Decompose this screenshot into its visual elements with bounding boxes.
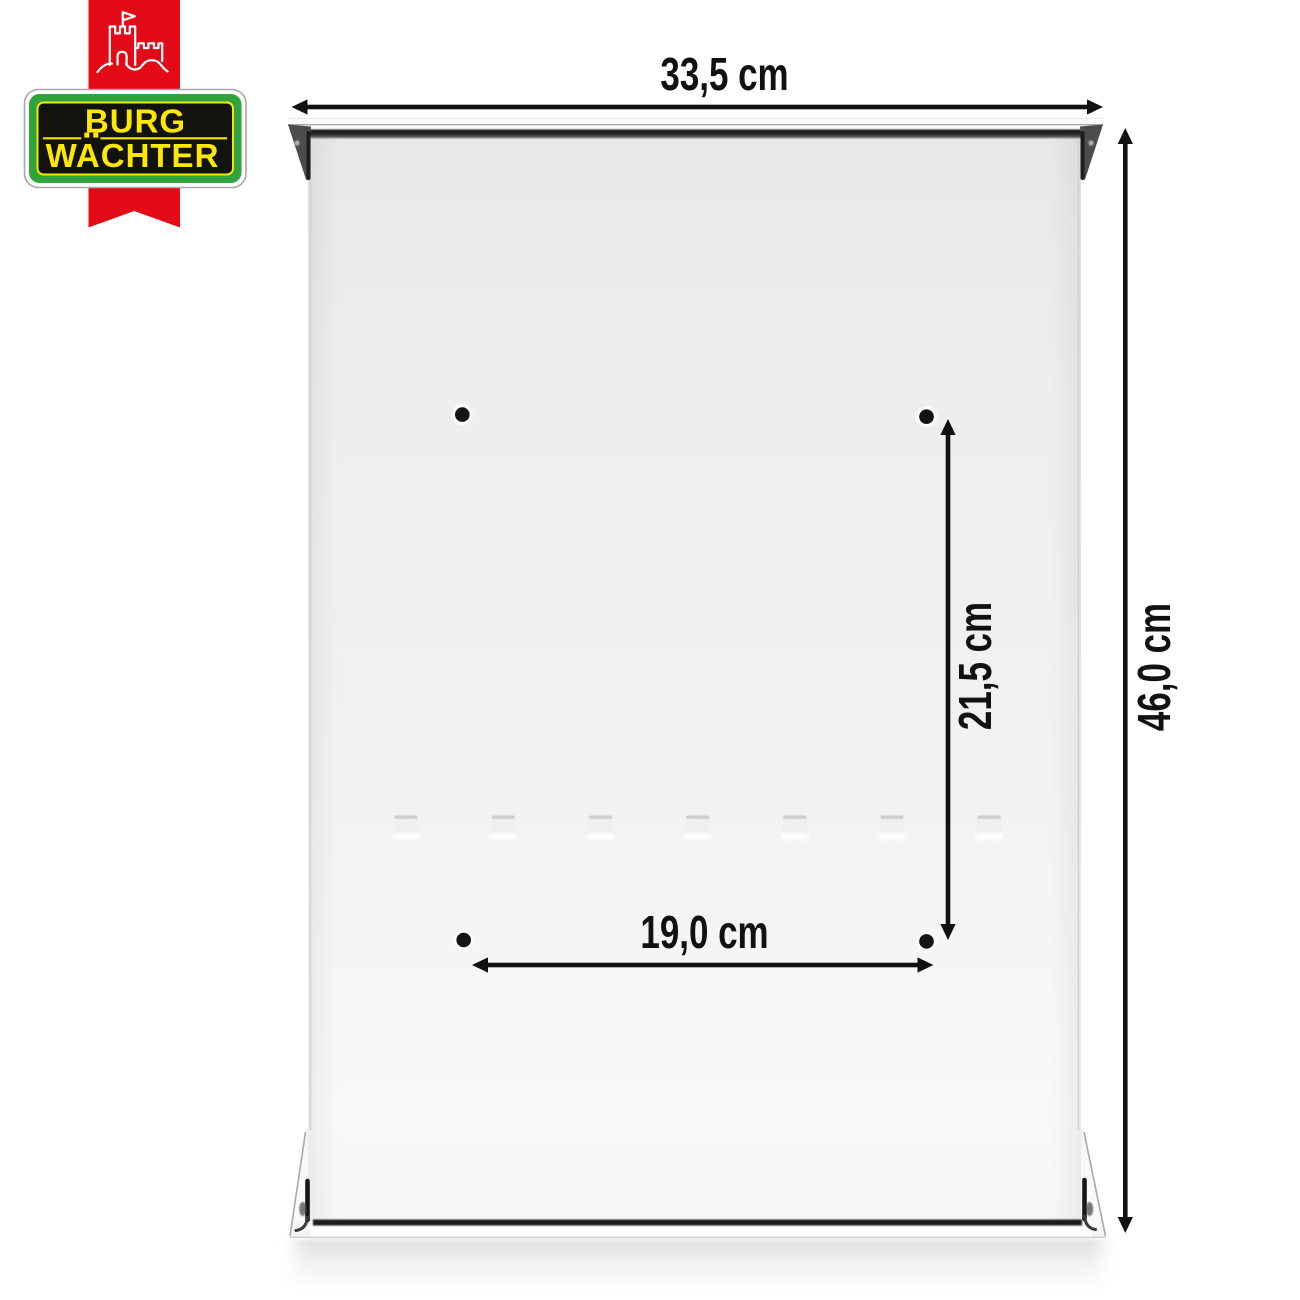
svg-text:WACHTER: WACHTER <box>46 137 220 174</box>
svg-text:46,0 cm: 46,0 cm <box>1128 603 1180 731</box>
svg-text:33,5 cm: 33,5 cm <box>660 48 788 100</box>
svg-text:19,0 cm: 19,0 cm <box>640 906 768 958</box>
svg-text:BURG: BURG <box>85 103 186 140</box>
svg-text:21,5 cm: 21,5 cm <box>949 602 1001 730</box>
